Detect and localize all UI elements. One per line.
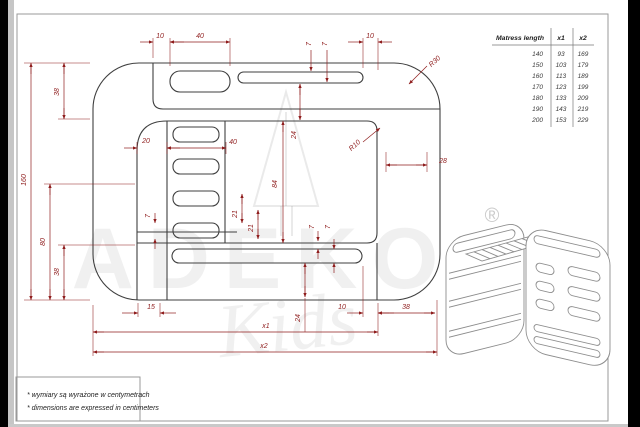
- table-cell-x1: 123: [556, 84, 567, 91]
- table-cell-x1: 93: [557, 51, 565, 58]
- dimension-label: x1: [261, 323, 270, 330]
- dimension-label: x2: [259, 343, 268, 350]
- dimension-label: 40: [196, 33, 204, 40]
- dimension-label: 10: [156, 33, 164, 40]
- table-cell-x2: 179: [578, 62, 589, 69]
- table-cell-x2: 199: [578, 84, 589, 91]
- page-shadow-left: [8, 0, 14, 427]
- dimension-label: 21: [248, 224, 255, 233]
- table-cell-x2: 189: [578, 73, 589, 80]
- dimension-label: 20: [141, 138, 150, 145]
- kids-watermark-text: Kids: [213, 276, 361, 374]
- dimension-label: 24: [291, 131, 298, 140]
- dimension-label: 15: [147, 304, 155, 311]
- table-cell-matress-length: 200: [531, 117, 543, 124]
- bed-right-side-panel: [526, 226, 610, 369]
- table-cell-x1: 103: [556, 62, 567, 69]
- dimension-label: 38: [54, 268, 61, 276]
- technical-drawing-canvas: ADEKO Kids ®: [0, 0, 640, 427]
- dimension-label: 160: [21, 174, 28, 186]
- table-cell-matress-length: 170: [532, 84, 543, 91]
- table-cell-matress-length: 160: [532, 73, 543, 80]
- screen-edge-left: [0, 0, 8, 427]
- dimension-label: 84: [272, 180, 279, 188]
- table-header-x1: x1: [556, 35, 565, 42]
- registered-trademark-symbol: ®: [485, 205, 500, 227]
- table-cell-x2: 209: [577, 95, 589, 102]
- dimension-label: 24: [295, 314, 302, 323]
- table-cell-x1: 143: [556, 106, 567, 113]
- table-cell-matress-length: 190: [532, 106, 543, 113]
- dimension-label: 38: [54, 88, 61, 96]
- table-cell-matress-length: 150: [532, 62, 543, 69]
- table-cell-matress-length: 180: [532, 95, 543, 102]
- dimension-label: 10: [338, 304, 346, 311]
- note-english: * dimensions are expressed in centimeter…: [27, 405, 159, 412]
- screen-edge-right: [628, 0, 640, 427]
- table-cell-x1: 153: [556, 117, 567, 124]
- dimension-label: 28: [438, 158, 447, 165]
- table-header-x2: x2: [578, 35, 587, 42]
- dimension-label: 40: [229, 139, 237, 146]
- dimension-label: 38: [402, 304, 410, 311]
- table-header-matress-length: Matress length: [496, 35, 544, 42]
- note-polish: * wymiary są wyrażone w centymetrach: [27, 392, 150, 399]
- dimension-label: 80: [40, 238, 47, 246]
- table-cell-x2: 169: [578, 51, 589, 58]
- dimension-label: 21: [232, 210, 239, 219]
- drawing-sheet-page: ADEKO Kids ®: [0, 0, 640, 427]
- dimension-label: 10: [366, 33, 374, 40]
- table-cell-x1: 133: [556, 95, 567, 102]
- table-cell-x2: 219: [577, 106, 589, 113]
- table-cell-matress-length: 140: [532, 51, 543, 58]
- table-cell-x2: 229: [577, 117, 589, 124]
- table-cell-x1: 113: [556, 73, 567, 80]
